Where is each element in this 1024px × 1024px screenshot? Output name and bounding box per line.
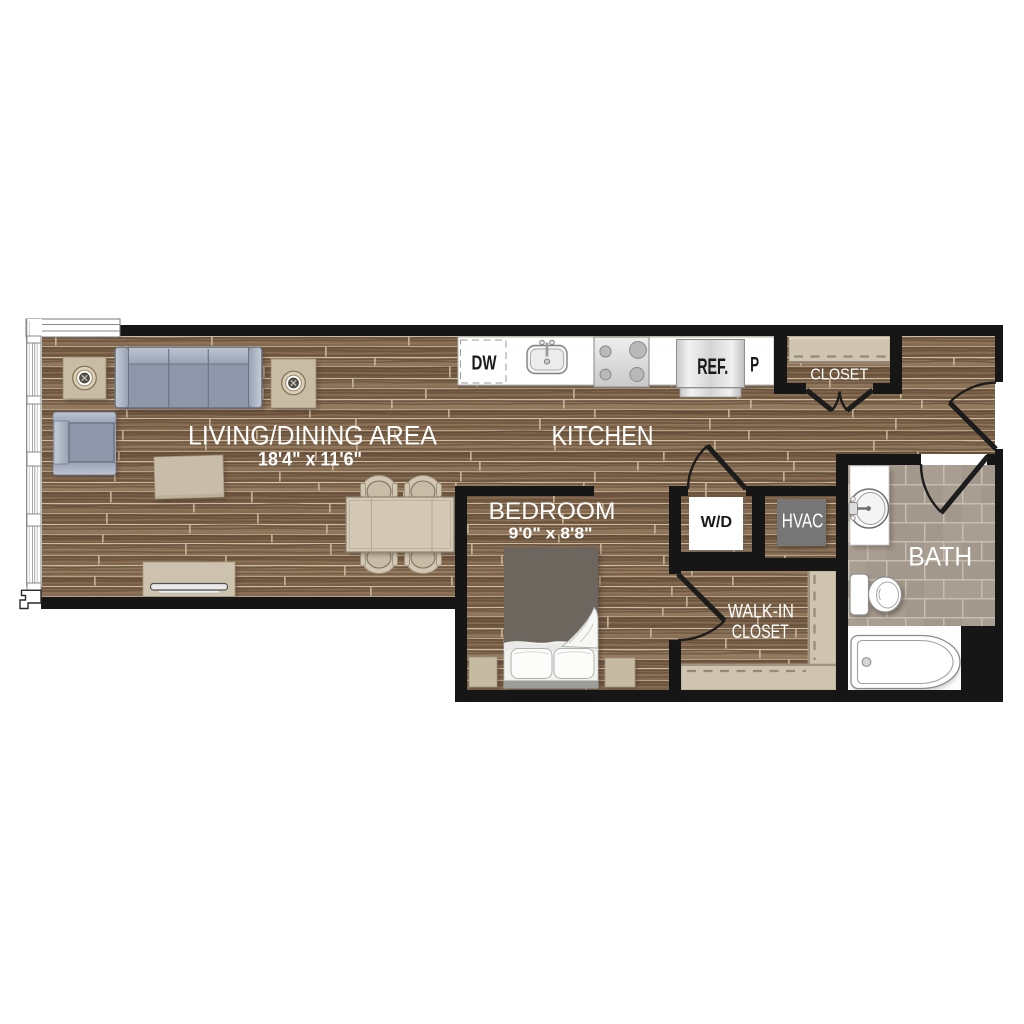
svg-text:W/D: W/D bbox=[701, 514, 733, 531]
svg-text:KITCHEN: KITCHEN bbox=[552, 420, 654, 451]
svg-text:HVAC: HVAC bbox=[782, 511, 824, 533]
svg-text:9'0" x 8'8": 9'0" x 8'8" bbox=[509, 526, 593, 543]
svg-text:BATH: BATH bbox=[908, 542, 972, 572]
svg-text:CLOSET: CLOSET bbox=[732, 622, 789, 643]
svg-text:REF.: REF. bbox=[697, 354, 728, 379]
svg-text:P: P bbox=[750, 354, 759, 377]
svg-text:BEDROOM: BEDROOM bbox=[489, 498, 616, 525]
svg-text:LIVING/DINING AREA: LIVING/DINING AREA bbox=[188, 421, 437, 451]
svg-text:CLOSET: CLOSET bbox=[810, 367, 868, 384]
svg-text:WALK-IN: WALK-IN bbox=[728, 602, 794, 623]
svg-text:DW: DW bbox=[472, 353, 497, 375]
svg-text:18'4" x 11'6": 18'4" x 11'6" bbox=[258, 450, 362, 471]
